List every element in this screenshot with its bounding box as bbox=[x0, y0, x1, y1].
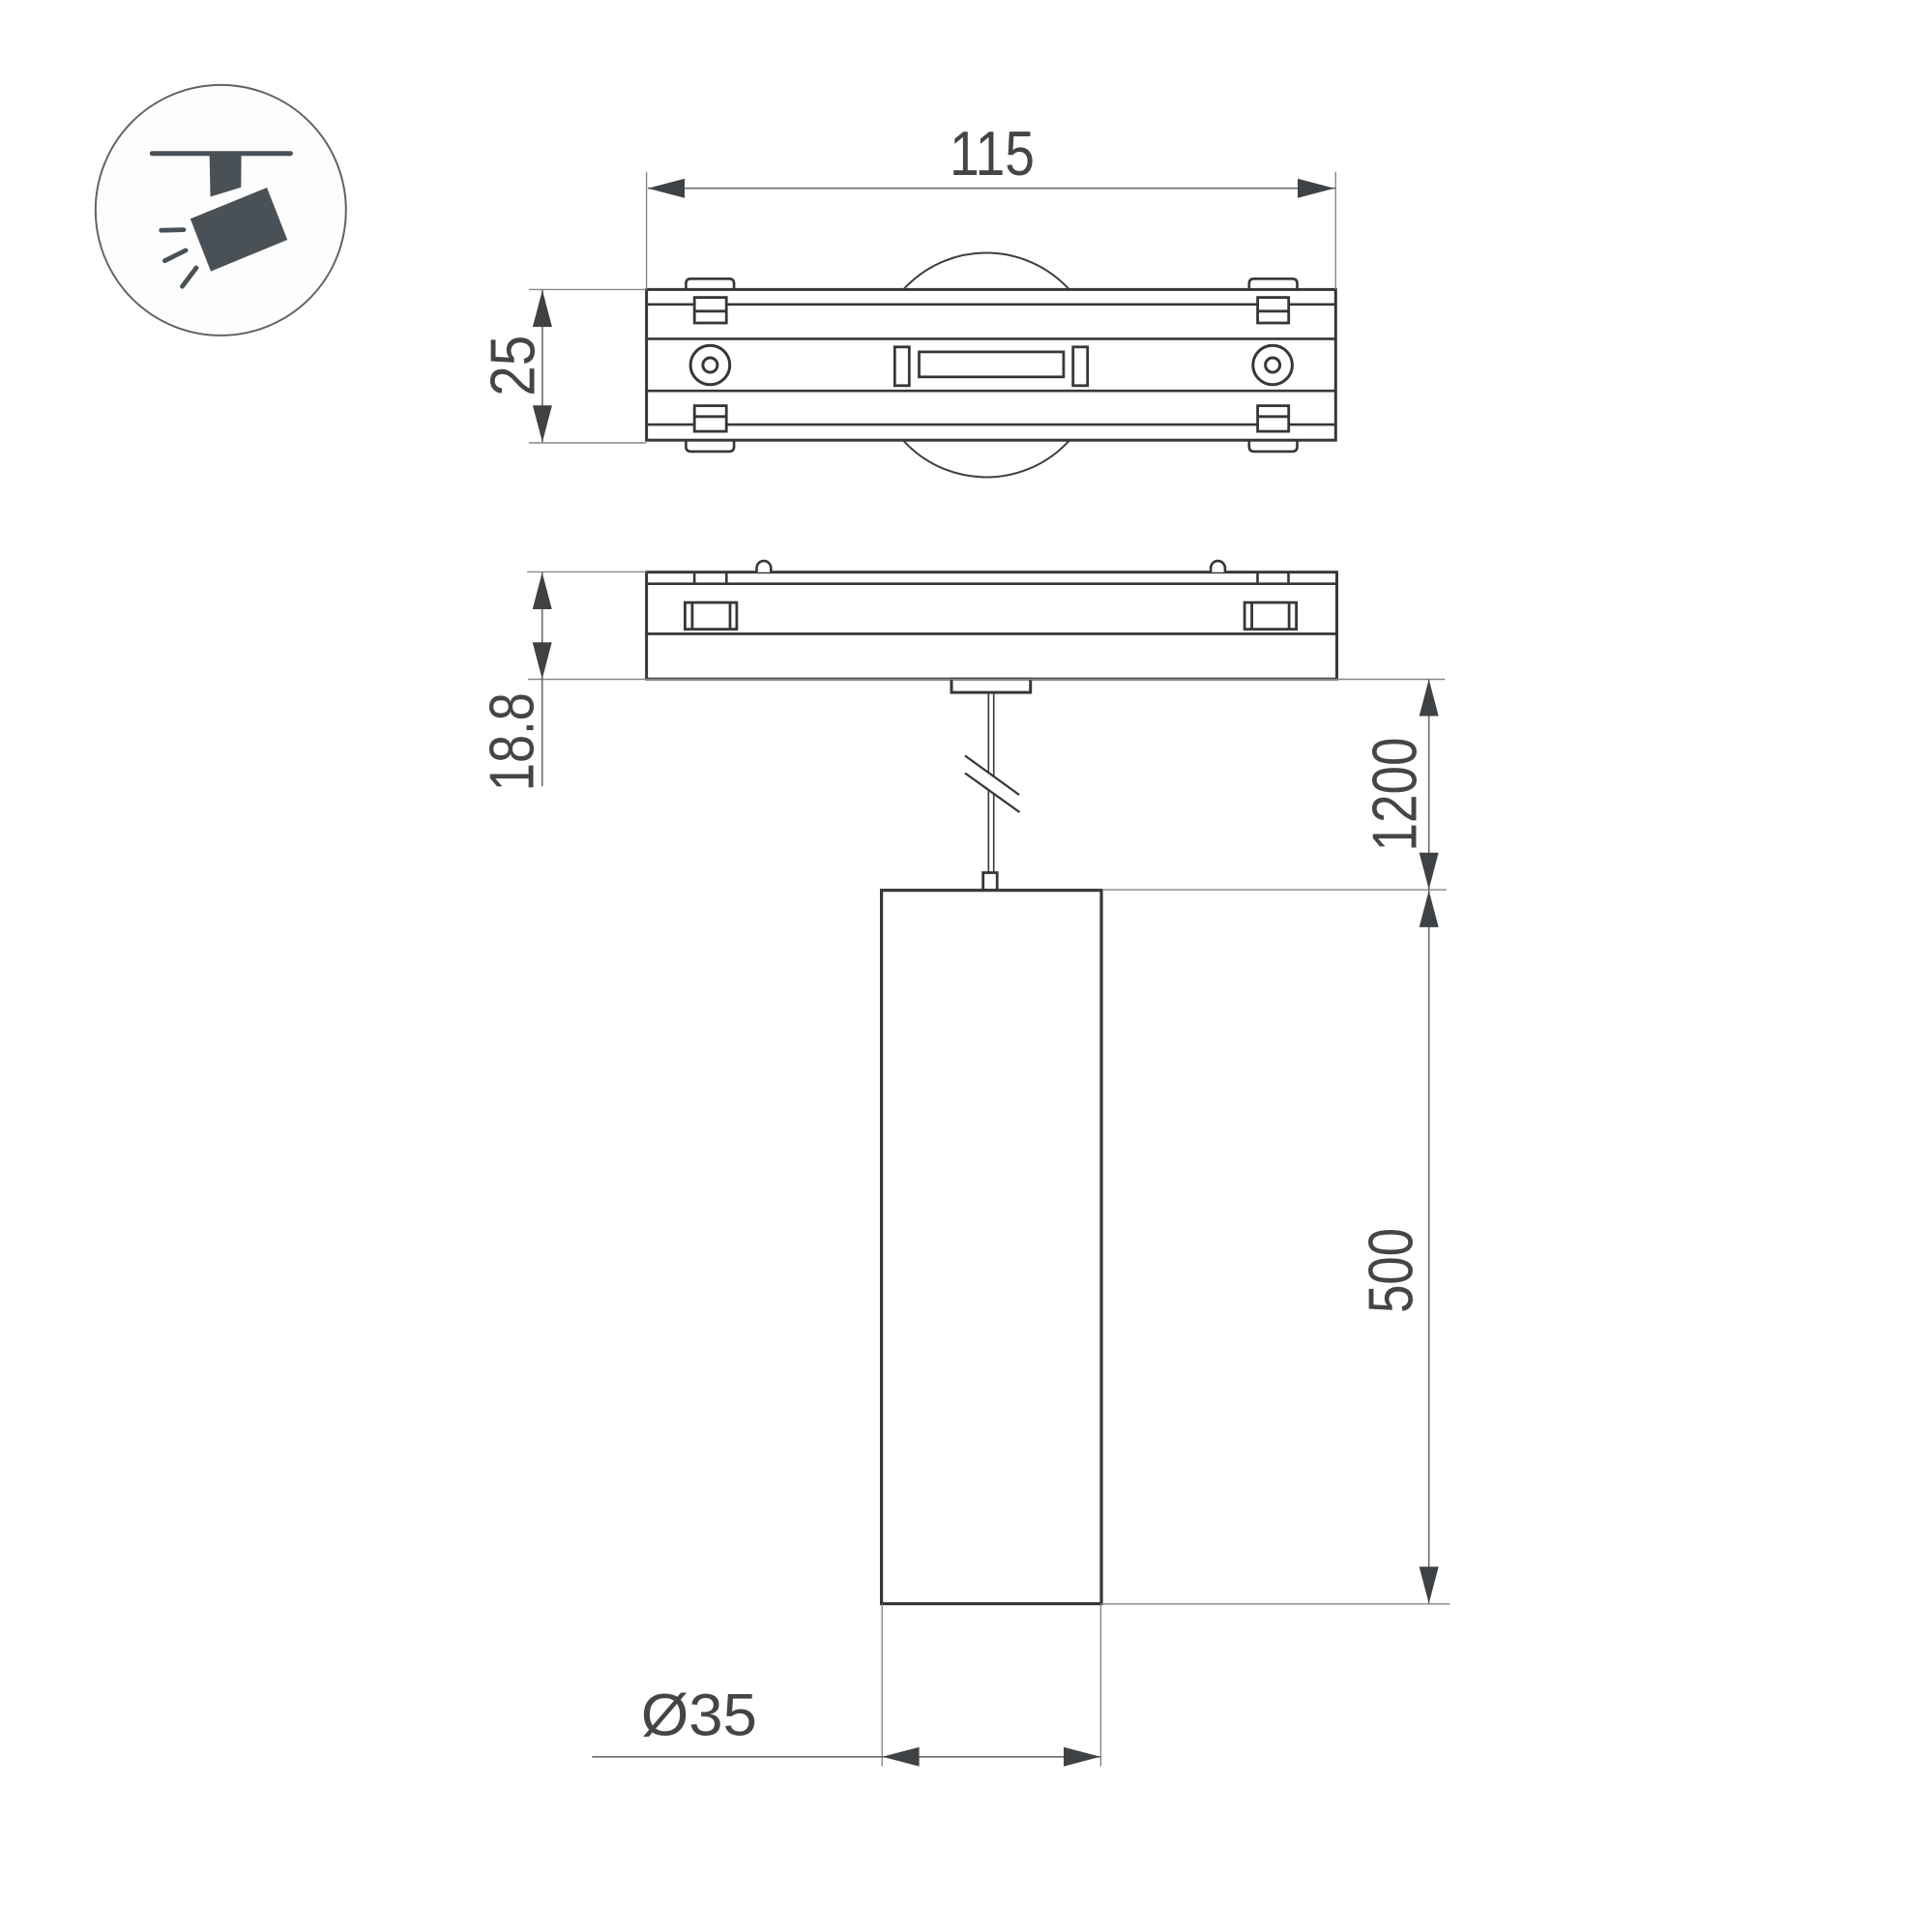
svg-text:25: 25 bbox=[478, 336, 548, 396]
svg-text:115: 115 bbox=[950, 118, 1035, 189]
svg-text:500: 500 bbox=[1356, 1228, 1426, 1313]
svg-text:1200: 1200 bbox=[1359, 738, 1429, 852]
svg-text:Ø35: Ø35 bbox=[641, 1683, 757, 1748]
svg-text:18.8: 18.8 bbox=[476, 692, 546, 791]
